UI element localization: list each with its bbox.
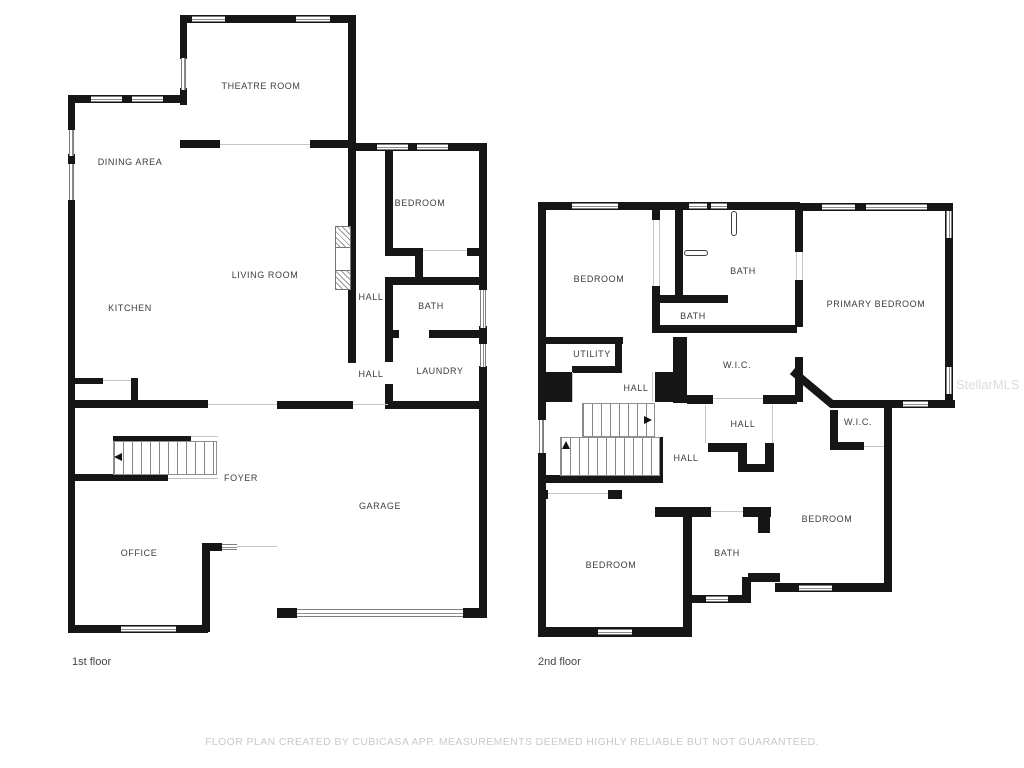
wall [652, 210, 660, 220]
wall [429, 330, 487, 338]
disclaimer-text: FLOOR PLAN CREATED BY CUBICASA APP. MEAS… [0, 736, 1024, 748]
wall [683, 510, 692, 637]
wall [538, 475, 660, 483]
window [946, 211, 952, 238]
room-label-kitchen: KITCHEN [108, 303, 152, 313]
wall [675, 210, 683, 302]
wall [830, 442, 864, 450]
wall [687, 395, 713, 404]
floor-caption-1st: 1st floor [72, 656, 111, 668]
stair-direction-arrow [644, 416, 652, 424]
staircase [560, 437, 660, 476]
fireplace [335, 226, 351, 290]
wall [388, 401, 483, 409]
wall [73, 474, 168, 481]
room-label-bath-2f-big: BATH [730, 266, 756, 276]
window [706, 596, 728, 602]
opening-line [353, 404, 388, 405]
window [711, 203, 727, 209]
door-leaf [731, 211, 737, 236]
room-label-bath-2f-bottom: BATH [714, 548, 740, 558]
window [799, 585, 832, 591]
opening-line [103, 380, 131, 381]
opening-line [772, 405, 773, 443]
room-label-foyer: FOYER [224, 473, 258, 483]
opening-line [572, 372, 573, 402]
wall [479, 401, 487, 618]
room-label-wic-middle: W.I.C. [723, 360, 751, 370]
window [91, 96, 122, 102]
wall [310, 140, 353, 148]
room-label-primary-bedroom: PRIMARY BEDROOM [827, 299, 926, 309]
room-label-hall-1f-b: HALL [359, 369, 384, 379]
window [689, 203, 707, 209]
wall [538, 490, 548, 499]
wall [202, 543, 222, 551]
window [572, 203, 618, 209]
wall [467, 248, 487, 256]
room-label-bedroom-2f-topleft: BEDROOM [574, 274, 625, 284]
wall [68, 95, 187, 103]
wall [75, 400, 208, 408]
room-label-hall-1f-a: HALL [359, 292, 384, 302]
wall [385, 330, 399, 338]
window [181, 58, 186, 90]
window [480, 290, 486, 328]
stair-direction-arrow [114, 453, 122, 461]
opening-line [705, 405, 706, 443]
window [222, 544, 237, 550]
window [69, 130, 74, 156]
room-label-garage: GARAGE [359, 501, 401, 511]
opening-line [220, 144, 310, 145]
opening-line [652, 372, 653, 402]
opening-line [208, 404, 277, 405]
opening-line [191, 436, 218, 437]
stair-direction-arrow [562, 441, 570, 449]
window [417, 144, 448, 150]
room-label-theatre-room: THEATRE ROOM [221, 81, 300, 91]
window [946, 367, 952, 394]
room-label-living-room: LIVING ROOM [232, 270, 299, 280]
wall [708, 443, 747, 452]
window [132, 96, 163, 102]
staircase [113, 441, 217, 475]
room-label-wic-right: W.I.C. [844, 417, 872, 427]
wall [758, 507, 770, 533]
room-label-bath-2f-small: BATH [680, 311, 706, 321]
wall [542, 372, 572, 402]
wall [479, 143, 487, 290]
wall [385, 338, 393, 362]
wall [277, 608, 297, 618]
window [192, 16, 225, 22]
wall [658, 325, 797, 333]
room-label-bedroom-1f: BEDROOM [395, 198, 446, 208]
wall [763, 395, 797, 404]
wall [748, 573, 780, 582]
opening-line [423, 250, 467, 251]
wall [884, 402, 892, 592]
wall [180, 15, 187, 59]
window [598, 629, 632, 635]
room-label-utility: UTILITY [573, 349, 611, 359]
room-label-laundry: LAUNDRY [416, 366, 463, 376]
wall [385, 277, 393, 338]
wall [277, 401, 353, 409]
opening-line [548, 493, 608, 494]
window [480, 344, 486, 367]
opening-line [864, 446, 884, 447]
wall [652, 295, 728, 303]
room-label-bedroom-2f-botright: BEDROOM [802, 514, 853, 524]
wall [463, 608, 487, 618]
opening-line [237, 546, 277, 547]
wall [385, 384, 393, 409]
wall [608, 490, 622, 499]
window [69, 164, 74, 200]
window [297, 609, 463, 617]
opening-line [168, 478, 218, 479]
room-label-hall-2f-center: HALL [674, 453, 699, 463]
opening-line [659, 220, 660, 286]
floor-caption-2nd: 2nd floor [538, 656, 581, 668]
room-label-hall-2f-top: HALL [624, 383, 649, 393]
opening-line [713, 398, 763, 399]
window [296, 16, 330, 22]
wall [385, 150, 393, 250]
wall [180, 140, 220, 148]
door-leaf [684, 250, 708, 256]
wall [795, 280, 803, 327]
wall [202, 551, 210, 632]
wall [542, 337, 623, 344]
wall [795, 210, 803, 252]
room-label-bath-1f: BATH [418, 301, 444, 311]
window [121, 626, 176, 632]
wall [75, 378, 103, 384]
window [539, 420, 544, 453]
floor-plan-canvas: THEATRE ROOM DINING AREA LIVING ROOM KIT… [0, 0, 1024, 768]
wall [673, 337, 687, 403]
opening-line [711, 511, 743, 512]
window [822, 204, 855, 210]
wall [68, 95, 75, 130]
wall [830, 400, 955, 408]
opening-line [796, 252, 797, 280]
wall [655, 507, 711, 517]
opening-line [653, 220, 654, 286]
window [903, 401, 928, 407]
watermark: StellarMLS [956, 377, 1020, 392]
wall [572, 366, 622, 373]
wall [385, 277, 487, 285]
wall [348, 15, 356, 148]
window [377, 144, 408, 150]
room-label-dining-area: DINING AREA [98, 157, 163, 167]
wall [742, 464, 772, 472]
room-label-bedroom-2f-botleft: BEDROOM [586, 560, 637, 570]
wall [68, 200, 75, 632]
window [866, 204, 927, 210]
room-label-hall-2f-right: HALL [731, 419, 756, 429]
wall [131, 378, 138, 402]
opening-line [802, 252, 803, 280]
room-label-office: OFFICE [121, 548, 158, 558]
